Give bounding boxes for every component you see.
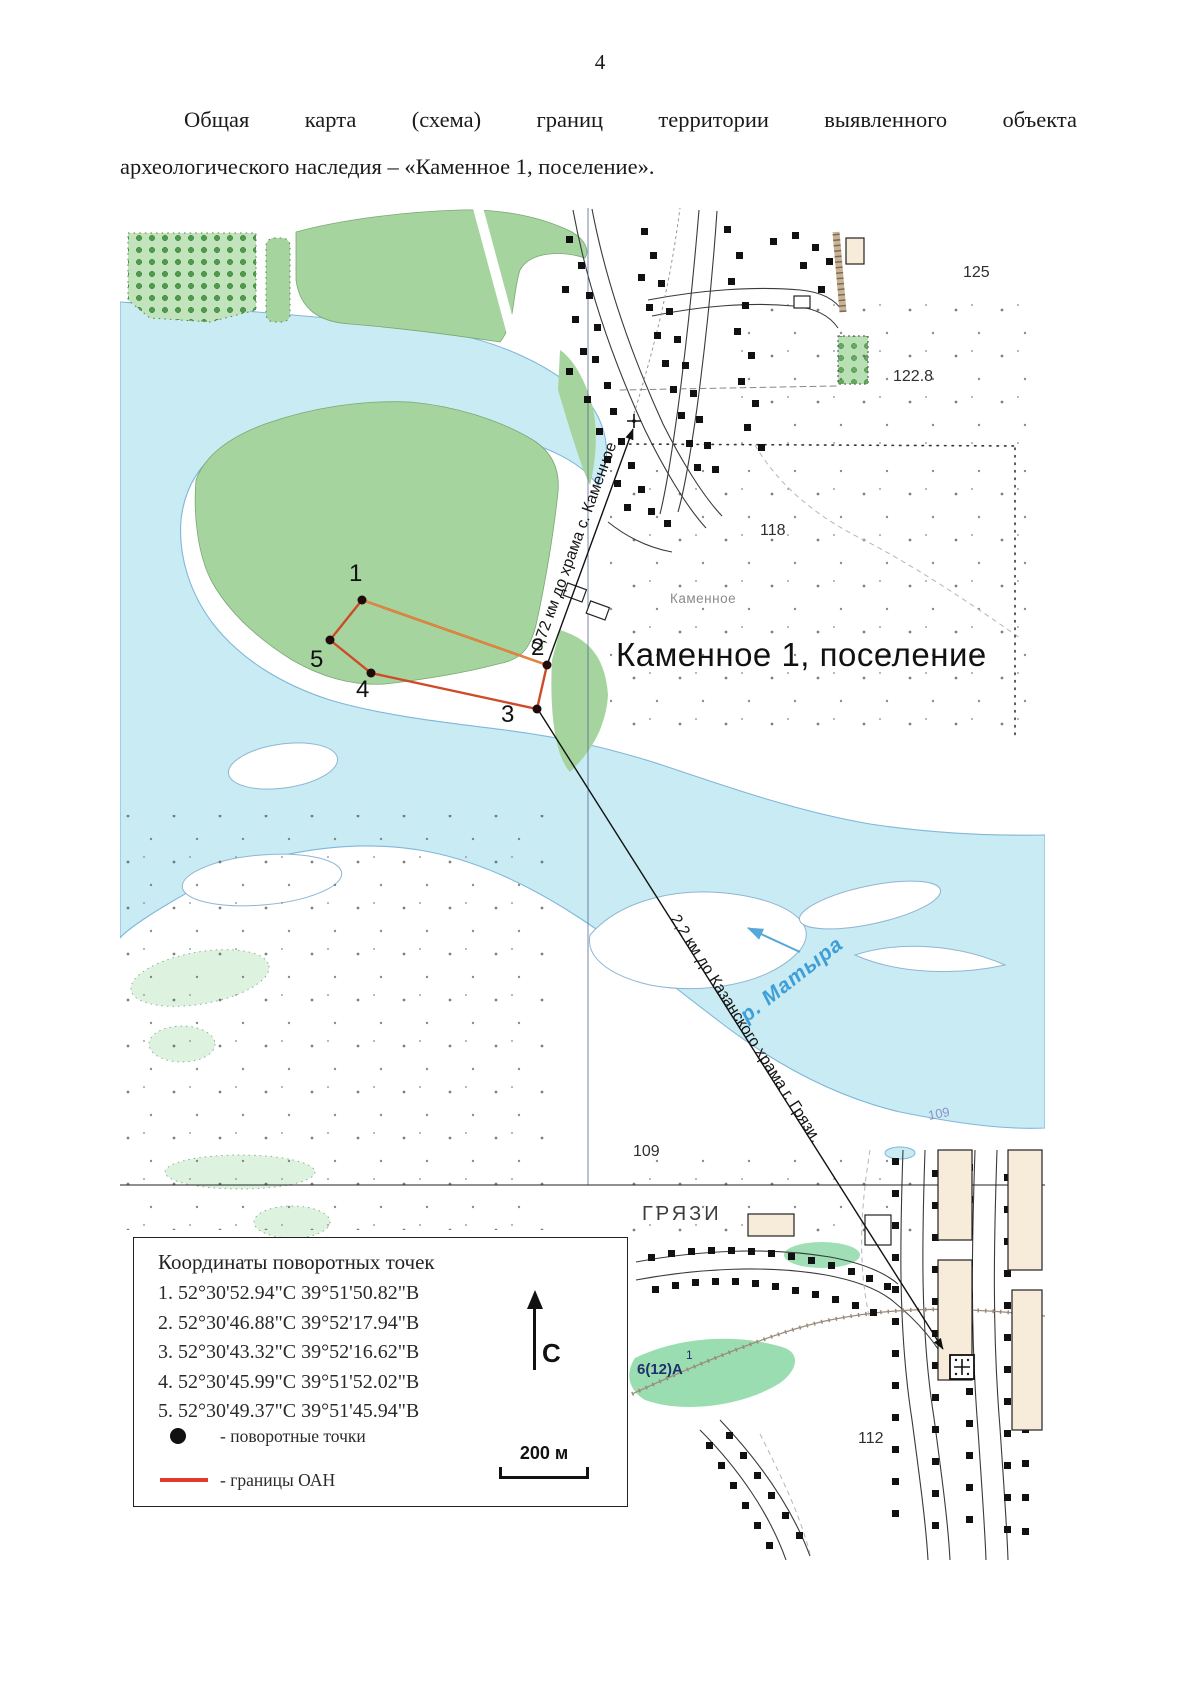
city-label: ГРЯЗИ — [642, 1203, 722, 1226]
scale-bar: 200 м — [496, 1443, 592, 1479]
map-figure: 125 122.8 118 109 112 109 Каменное Камен… — [120, 208, 1045, 1560]
elevation-label-125: 125 — [963, 264, 990, 282]
coordinate-point-2: 2. 52°30'46.88"С 39°52'17.94"В — [158, 1312, 419, 1335]
legend-title: Координаты поворотных точек — [158, 1250, 435, 1275]
coordinate-point-5: 5. 52°30'49.37"С 39°51'45.94"В — [158, 1400, 419, 1423]
coordinate-point-3: 3. 52°30'43.32"С 39°52'16.62"В — [158, 1341, 419, 1364]
north-arrow-head — [527, 1290, 543, 1309]
map-legend: Координаты поворотных точек 1. 52°30'52.… — [133, 1237, 628, 1507]
point-label-1: 1 — [349, 560, 362, 588]
plot-index-label: 1 — [686, 1348, 693, 1362]
elevation-label-109: 109 — [633, 1143, 660, 1161]
boundary-line-icon — [160, 1478, 208, 1482]
elevation-label-112: 112 — [858, 1430, 884, 1448]
title-line-2: археологического наследия – «Каменное 1,… — [120, 150, 1077, 183]
church-square-icon — [950, 1355, 974, 1379]
turning-points-legend-label: - поворотные точки — [220, 1426, 366, 1447]
point-label-2: 2 — [531, 634, 544, 662]
coordinate-point-4: 4. 52°30'45.99"С 39°51'52.02"В — [158, 1371, 419, 1394]
north-arrow-icon: С — [506, 1290, 576, 1390]
elevation-label-118: 118 — [760, 522, 786, 540]
scale-bar-rule — [499, 1467, 589, 1479]
scale-label: 200 м — [496, 1443, 592, 1464]
point-label-5: 5 — [310, 646, 323, 674]
page-number: 4 — [0, 50, 1200, 75]
point-label-4: 4 — [356, 676, 369, 704]
document-page: 4 Общая карта (схема) границ территории … — [0, 0, 1200, 1697]
site-name-label: Каменное 1, поселение — [616, 636, 987, 674]
north-arrow-shaft — [533, 1306, 536, 1370]
plot-label: 6(12)А — [637, 1361, 683, 1378]
turning-point-icon — [170, 1428, 186, 1444]
elevation-label-122-8: 122.8 — [893, 368, 933, 386]
boundary-legend-label: - границы ОАН — [220, 1470, 335, 1491]
village-label: Каменное — [670, 591, 736, 606]
coordinate-point-1: 1. 52°30'52.94"С 39°51'50.82"В — [158, 1282, 419, 1305]
north-label: С — [542, 1338, 561, 1369]
point-label-3: 3 — [501, 701, 514, 729]
title-line-1: Общая карта (схема) границ территории вы… — [120, 103, 1077, 136]
document-title: Общая карта (схема) границ территории вы… — [120, 103, 1077, 183]
